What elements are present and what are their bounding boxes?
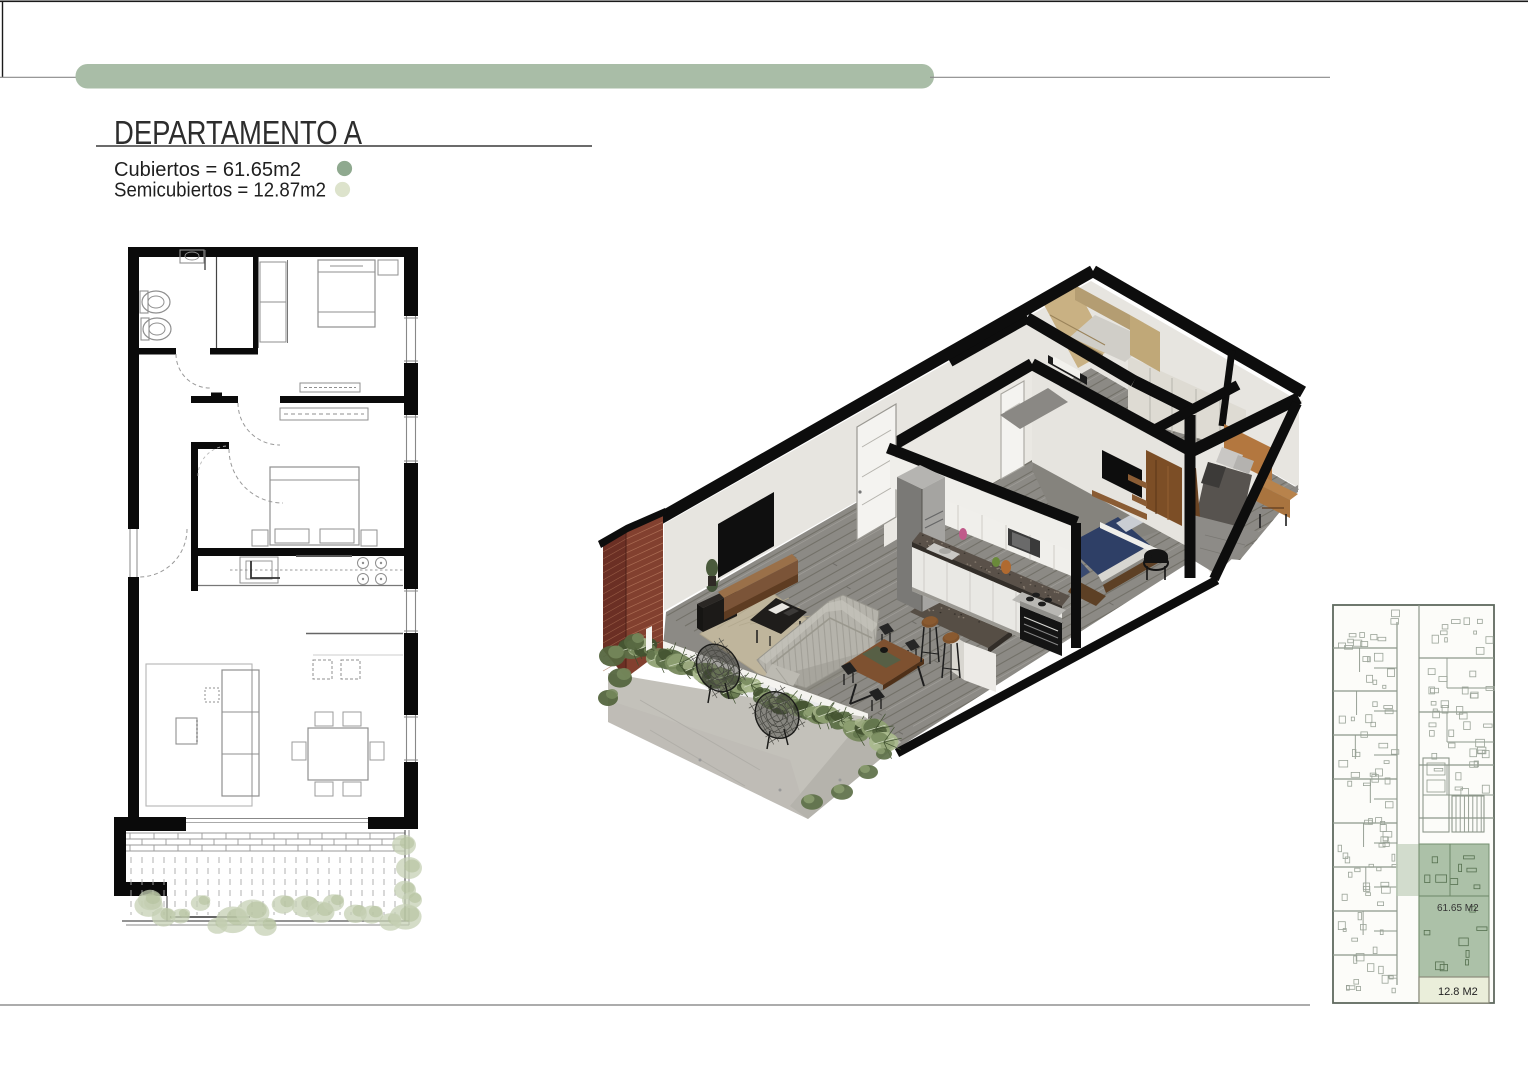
svg-text:61.65 M2: 61.65 M2 (1437, 903, 1479, 914)
svg-text:Semicubiertos = 12.87m2: Semicubiertos = 12.87m2 (114, 179, 326, 202)
svg-text:12.8 M2: 12.8 M2 (1438, 986, 1478, 998)
